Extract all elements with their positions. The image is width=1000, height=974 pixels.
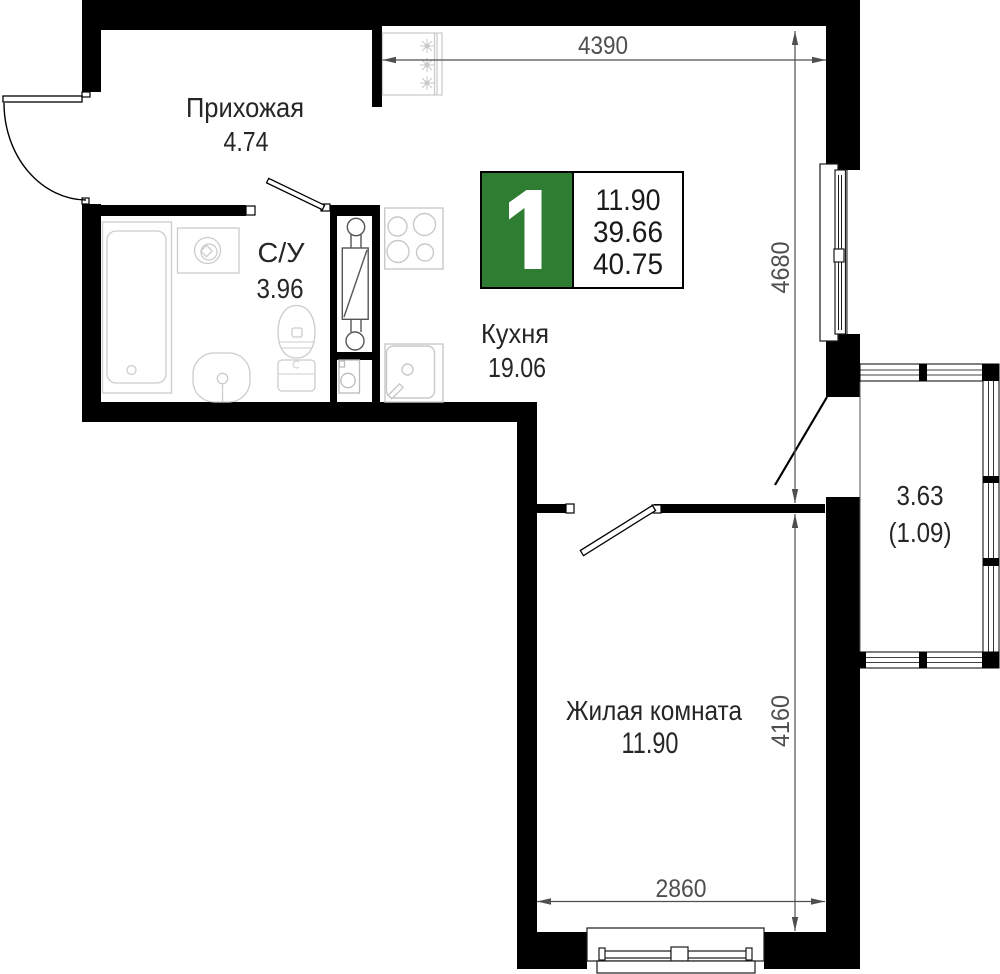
svg-text:(1.09): (1.09) <box>889 517 952 548</box>
svg-text:Жилая комната: Жилая комната <box>566 695 742 726</box>
svg-text:3.63: 3.63 <box>897 480 944 511</box>
svg-text:4.74: 4.74 <box>224 126 269 157</box>
svg-text:4680: 4680 <box>767 242 795 294</box>
svg-text:2860: 2860 <box>656 875 707 903</box>
svg-text:11.90: 11.90 <box>622 727 679 760</box>
svg-text:4160: 4160 <box>767 695 795 747</box>
svg-text:11.90: 11.90 <box>596 184 661 217</box>
svg-text:4390: 4390 <box>578 32 628 60</box>
svg-text:С/У: С/У <box>258 237 305 268</box>
svg-text:39.66: 39.66 <box>593 216 663 249</box>
svg-text:Прихожая: Прихожая <box>186 92 304 123</box>
svg-text:40.75: 40.75 <box>593 248 663 281</box>
svg-text:3.96: 3.96 <box>257 273 304 304</box>
svg-text:19.06: 19.06 <box>488 352 546 383</box>
svg-text:Кухня: Кухня <box>481 318 549 349</box>
